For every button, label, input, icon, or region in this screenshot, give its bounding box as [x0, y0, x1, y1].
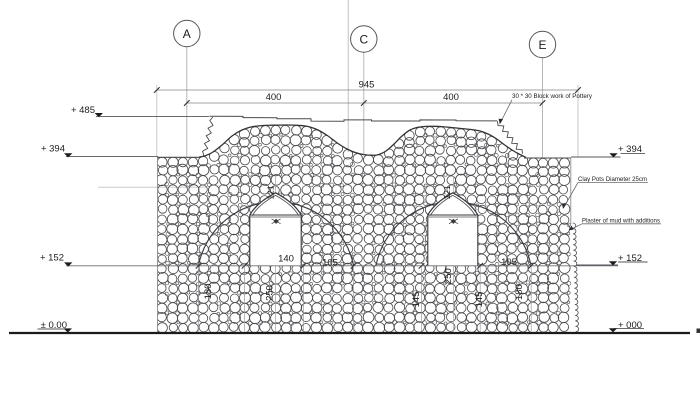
svg-text:180: 180 — [514, 284, 525, 300]
svg-text:945: 945 — [359, 80, 375, 91]
svg-text:121: 121 — [265, 185, 275, 199]
svg-text:250: 250 — [443, 268, 454, 284]
svg-text:E: E — [538, 38, 546, 52]
svg-text:140: 140 — [278, 253, 294, 264]
svg-text:+ 000: + 000 — [618, 320, 642, 331]
svg-text:C: C — [359, 32, 368, 46]
svg-text:121: 121 — [442, 185, 452, 199]
svg-text:105: 105 — [322, 257, 338, 268]
svg-text:+ 152: + 152 — [40, 253, 64, 264]
svg-text:145: 145 — [411, 292, 422, 308]
svg-text:145: 145 — [474, 292, 485, 308]
svg-text:180: 180 — [203, 284, 214, 300]
svg-text:+ 485: + 485 — [71, 105, 95, 116]
svg-text:± 0.00: ± 0.00 — [41, 320, 67, 331]
svg-text:400: 400 — [443, 92, 459, 103]
svg-text:30 * 30 Block work of Pottery: 30 * 30 Block work of Pottery — [512, 93, 593, 100]
svg-text:A: A — [183, 27, 191, 41]
svg-text:Plaster of mud with additions: Plaster of mud with additions — [582, 217, 661, 224]
svg-text:Clay Pots Diameter 25cm: Clay Pots Diameter 25cm — [578, 176, 647, 183]
svg-text:+ 152: + 152 — [618, 253, 642, 264]
svg-text:250: 250 — [264, 285, 275, 301]
svg-text:105: 105 — [501, 257, 517, 268]
svg-text:400: 400 — [266, 92, 282, 103]
svg-text:+ 394: + 394 — [618, 144, 642, 155]
svg-text:+ 394: + 394 — [41, 144, 65, 155]
